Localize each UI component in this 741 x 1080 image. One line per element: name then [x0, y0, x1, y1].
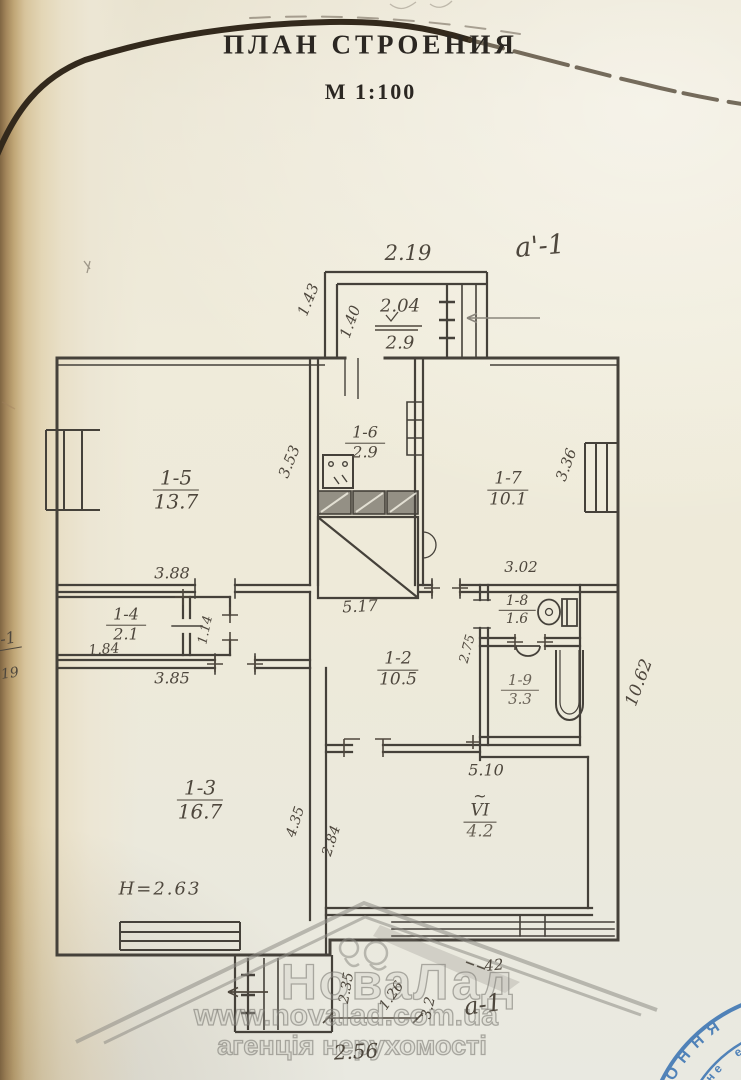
room-label-1-7: 1-7 10.1: [487, 471, 528, 510]
dim-room14-width: 1.84: [88, 642, 120, 659]
dim-porch-width: 2.19: [385, 242, 432, 264]
room-area: 4.2: [464, 823, 497, 842]
dim-porch2-width: 2.56: [333, 1040, 379, 1063]
room-area: 1.6: [499, 611, 536, 627]
room-area: 10.5: [377, 671, 418, 690]
room-number: 1-9: [501, 673, 539, 691]
room-area: 2.9: [345, 444, 385, 462]
dim-porch-inner-a: 2.04: [380, 298, 420, 317]
room-label-1-9: 1-9 3.3: [501, 673, 539, 708]
svg-text:ьне: ьне: [695, 1059, 727, 1080]
furnace-hatch: [318, 491, 418, 598]
dim-corridor-length: 5.17: [342, 598, 378, 617]
edge-fragment-a: -1: [0, 629, 21, 650]
room-label-1-2: 1-2 10.5: [377, 651, 418, 690]
dim-bottom-partial: 42: [484, 957, 504, 974]
room-number: 1-3: [177, 778, 223, 801]
dim-room13-width: 3.85: [154, 671, 190, 688]
room-area: 10.1: [487, 491, 528, 510]
toilet-icon: [538, 599, 577, 626]
dim-room17-width: 3.02: [504, 560, 537, 576]
pencil-marks: [2, 1, 452, 409]
room-number: 1-2: [377, 651, 418, 671]
room-area: 16.7: [177, 801, 223, 823]
stairs-icon: [439, 284, 476, 358]
stamp-seal: ЙОННЯ ьне е б: [645, 992, 741, 1080]
sink-icon: [516, 646, 540, 656]
window-icon-bottom: [120, 922, 240, 950]
room-number: 1-8: [499, 594, 536, 611]
dim-roomVI-width: 5.10: [468, 763, 504, 780]
window-icon-left: [46, 430, 100, 510]
stamp-inner-text: ьне: [695, 1059, 727, 1080]
room-number: VI: [464, 803, 497, 823]
edge-fragment-b: 19: [0, 665, 20, 682]
stamp-inner-text-2: е б: [731, 1034, 741, 1060]
room-number: 1-7: [487, 471, 528, 491]
outer-walls: [57, 358, 618, 955]
room-number: 1-4: [106, 607, 146, 626]
section-mark-bottom: а-1: [463, 990, 504, 1020]
page-title: ПЛАН СТРОЕНИЯ: [223, 30, 518, 61]
inner-walls: [57, 358, 618, 955]
ceiling-height-note: Н=2.63: [119, 881, 202, 900]
window-icon-right: [585, 443, 618, 512]
plan-drawing: ЙОННЯ ьне е б: [0, 0, 741, 1080]
porch-entry-arrow-icon: [467, 314, 540, 323]
room-label-1-5: 1-5 13.7: [153, 468, 199, 513]
room-label-1-3: 1-3 16.7: [177, 778, 223, 823]
section-mark-top: а'-1: [514, 231, 566, 264]
room-area: 13.7: [153, 491, 199, 513]
drawing-scale: М 1:100: [325, 79, 417, 105]
dim-porch-inner-b: 2.9: [386, 335, 415, 354]
watermark-url: www.novalad.com.ua: [194, 999, 498, 1033]
room-label-1-4: 1-4 2.1: [106, 607, 146, 644]
room-label-VI: VI 4.2: [464, 803, 497, 842]
edge-fragment-text: -1: [0, 627, 21, 652]
room-number: 1-6: [345, 425, 385, 444]
svg-text:е б: е б: [731, 1034, 741, 1060]
room-label-1-8: 1-8 1.6: [499, 594, 536, 626]
dim-room15-width: 3.88: [154, 566, 190, 583]
room-label-1-6: 1-6 2.9: [345, 425, 385, 462]
scanned-floor-plan-page: ЙОННЯ ьне е б ПЛАН СТРОЕНИЯ М 1:100 Нова…: [0, 0, 741, 1080]
room-number: 1-5: [153, 468, 199, 491]
room-area: 3.3: [501, 691, 539, 708]
